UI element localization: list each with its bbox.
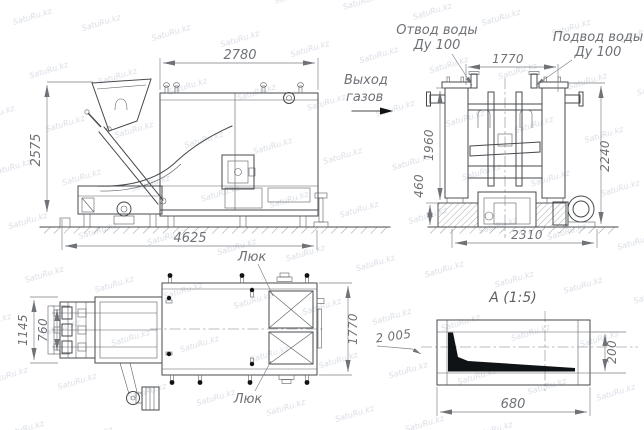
hatch-bottom-text: Люк [233, 392, 263, 407]
dim-200-text: 200 [605, 340, 619, 364]
dim-1770-plan-text: 1770 [346, 313, 360, 345]
dim-460-text: 460 [412, 174, 426, 198]
dim-1770-front-text: 1770 [492, 52, 524, 66]
dim-1960-text: 1960 [422, 129, 436, 161]
water-outlet-text-line2: Ду 100 [413, 38, 461, 53]
ground-hatch [40, 227, 390, 234]
gas-outlet-text-line2: газов [346, 90, 383, 105]
gas-outlet-text-line1: Выход [344, 73, 388, 88]
hatch-top-text: Люк [237, 250, 267, 265]
water-inlet-text-line1: Подвод воды [553, 30, 643, 45]
dim-2240-text: 2240 [598, 140, 612, 172]
boiler-technical-drawing: SatuRu.kz SatuRu.kz [0, 0, 644, 430]
dim-4625-text: 4625 [173, 231, 206, 246]
detail-title: А (1:5) [488, 290, 536, 306]
dim-760-text: 760 [36, 318, 50, 342]
dim-2780-text: 2780 [223, 48, 256, 63]
water-outlet-text-line1: Отвод воды [396, 23, 477, 38]
dim-2575-text: 2575 [29, 133, 44, 166]
dim-680-text: 680 [501, 397, 526, 412]
dim-1145-text: 1145 [16, 314, 30, 346]
water-inlet-text-line2: Ду 100 [574, 45, 622, 60]
dim-2310-text: 2310 [511, 228, 543, 242]
drawing-canvas: SatuRu.kz SatuRu.kz [0, 0, 644, 430]
